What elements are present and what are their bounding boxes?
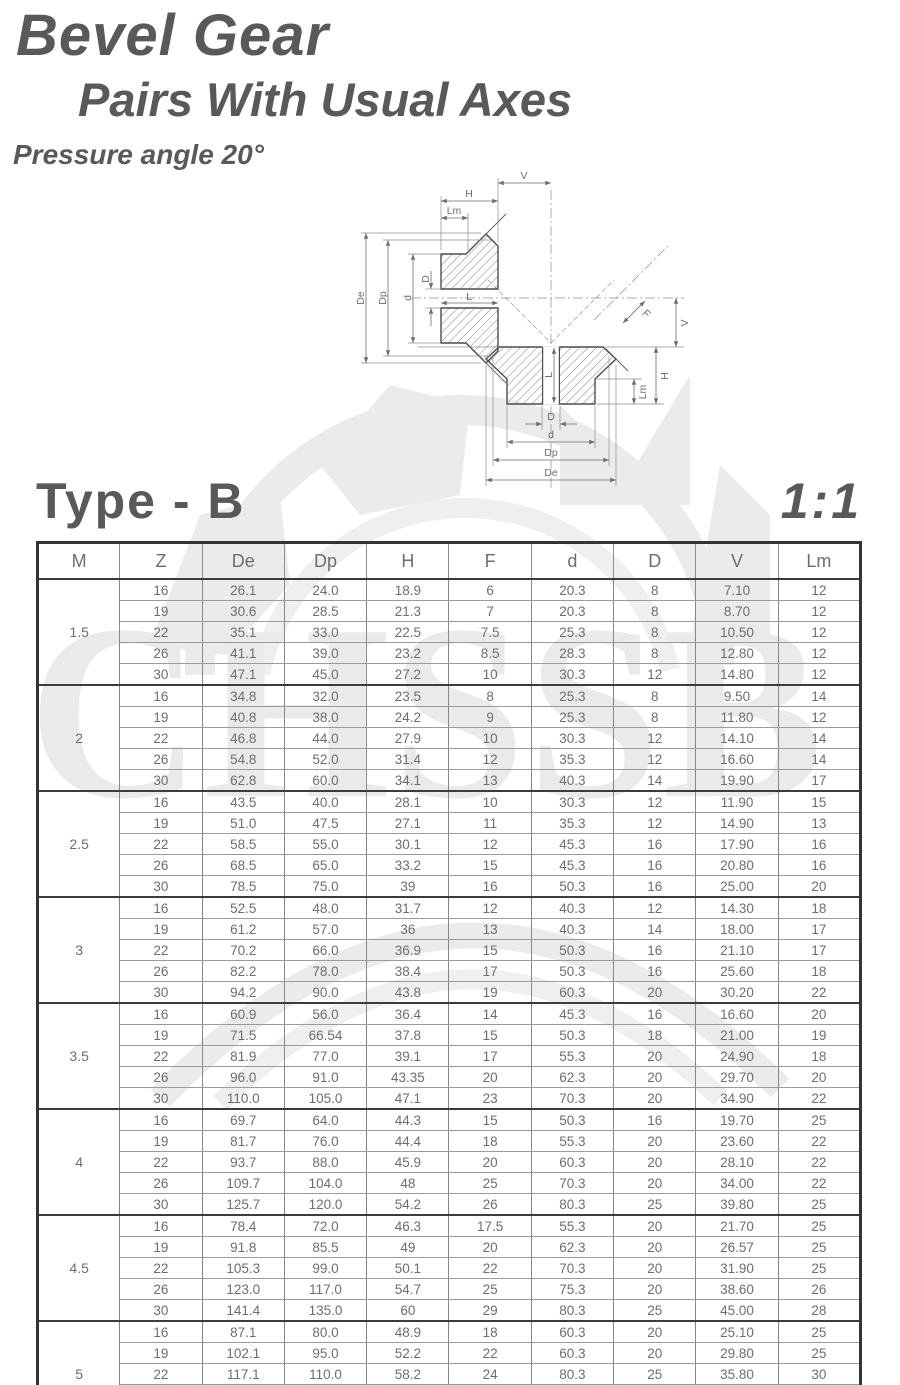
value-cell: 29 [449,1300,531,1322]
value-cell: 25 [449,1279,531,1300]
value-cell: 16 [120,579,202,601]
value-cell: 12 [614,728,696,749]
value-cell: 30.3 [531,791,613,813]
value-cell: 19.90 [696,770,778,792]
dim-label-v: V [520,170,527,182]
table-row: 1991.885.5492062.32026.5725 [38,1237,861,1258]
value-cell: 7.10 [696,579,778,601]
value-cell: 43.35 [367,1067,449,1088]
table-row: 21634.832.023.5825.389.5014 [38,685,861,707]
value-cell: 52.5 [202,897,284,919]
value-cell: 33.0 [284,622,366,643]
value-cell: 16 [778,855,860,876]
value-cell: 66.0 [284,940,366,961]
value-cell: 9 [449,707,531,728]
value-cell: 47.5 [284,813,366,834]
value-cell: 26 [120,855,202,876]
value-cell: 12 [778,643,860,664]
value-cell: 16 [449,876,531,898]
value-cell: 25.60 [696,961,778,982]
column-header-f: F [449,543,531,580]
value-cell: 26.57 [696,1237,778,1258]
value-cell: 26 [449,1194,531,1216]
value-cell: 27.2 [367,664,449,686]
dim-label-d-bore: D [420,275,432,283]
value-cell: 32.0 [284,685,366,707]
value-cell: 22 [778,982,860,1004]
value-cell: 16 [120,685,202,707]
value-cell: 61.2 [202,919,284,940]
value-cell: 30 [120,1300,202,1322]
value-cell: 25 [778,1109,860,1131]
value-cell: 12 [778,579,860,601]
table-row: 26123.0117.054.72575.32038.6026 [38,1279,861,1300]
value-cell: 20 [614,1237,696,1258]
value-cell: 66.54 [284,1025,366,1046]
value-cell: 20.3 [531,601,613,622]
gear-sections [441,234,616,404]
value-cell: 82.2 [202,961,284,982]
value-cell: 34.1 [367,770,449,792]
value-cell: 12 [449,897,531,919]
value-cell: 33.2 [367,855,449,876]
value-cell: 90.0 [284,982,366,1004]
dim-label-l-right: L [543,372,555,378]
table-row: 30110.0105.047.12370.32034.9022 [38,1088,861,1110]
value-cell: 8 [449,685,531,707]
value-cell: 20 [778,1067,860,1088]
value-cell: 16 [614,1109,696,1131]
table-row: 2682.278.038.41750.31625.6018 [38,961,861,982]
value-cell: 25.3 [531,707,613,728]
value-cell: 14.90 [696,813,778,834]
value-cell: 26 [120,1173,202,1194]
header-row: MZDeDpHFdDVLm [38,543,861,580]
value-cell: 43.5 [202,791,284,813]
value-cell: 30.20 [696,982,778,1004]
value-cell: 39 [367,876,449,898]
value-cell: 20.80 [696,855,778,876]
value-cell: 70.2 [202,940,284,961]
table-row: 3078.575.0391650.31625.0020 [38,876,861,898]
value-cell: 20 [614,1046,696,1067]
value-cell: 62.8 [202,770,284,792]
value-cell: 29.80 [696,1343,778,1364]
value-cell: 30.3 [531,664,613,686]
table-row: 4.51678.472.046.317.555.32021.7025 [38,1215,861,1237]
value-cell: 55.3 [531,1046,613,1067]
value-cell: 120.0 [284,1194,366,1216]
column-header-h: H [367,543,449,580]
value-cell: 36.4 [367,1003,449,1025]
value-cell: 102.1 [202,1343,284,1364]
value-cell: 12 [778,622,860,643]
value-cell: 19.70 [696,1109,778,1131]
pressure-angle-note: Pressure angle 20° [13,139,264,171]
value-cell: 105.3 [202,1258,284,1279]
value-cell: 62.3 [531,1067,613,1088]
value-cell: 48 [367,1173,449,1194]
value-cell: 26 [120,1279,202,1300]
column-header-m: M [38,543,120,580]
table-header: MZDeDpHFdDVLm [38,543,861,580]
value-cell: 14.10 [696,728,778,749]
value-cell: 16 [614,834,696,855]
value-cell: 22.5 [367,622,449,643]
table-row: 26109.7104.0482570.32034.0022 [38,1173,861,1194]
value-cell: 26 [120,749,202,770]
value-cell: 34.8 [202,685,284,707]
value-cell: 14 [614,770,696,792]
value-cell: 25 [778,1343,860,1364]
value-cell: 16 [120,897,202,919]
dim-label-l: L [466,291,472,303]
table-row: 51687.180.048.91860.32025.1025 [38,1321,861,1343]
dimension-labels: Lm H V De Dp d D L V H Lm F L D d Dp De [355,170,691,479]
value-cell: 117.1 [202,1364,284,1385]
value-cell: 60.3 [531,982,613,1004]
value-cell: 16.60 [696,1003,778,1025]
value-cell: 8.5 [449,643,531,664]
table-row: 1981.776.044.41855.32023.6022 [38,1131,861,1152]
table-row: 2668.565.033.21545.31620.8016 [38,855,861,876]
value-cell: 58.5 [202,834,284,855]
value-cell: 50.3 [531,1025,613,1046]
value-cell: 12 [778,601,860,622]
table-row: 2696.091.043.352062.32029.7020 [38,1067,861,1088]
value-cell: 44.4 [367,1131,449,1152]
value-cell: 25 [449,1173,531,1194]
value-cell: 70.3 [531,1258,613,1279]
value-cell: 14 [778,728,860,749]
value-cell: 31.4 [367,749,449,770]
value-cell: 44.0 [284,728,366,749]
table-row: 41669.764.044.31550.31619.7025 [38,1109,861,1131]
value-cell: 40.3 [531,919,613,940]
value-cell: 18.00 [696,919,778,940]
table-row: 2281.977.039.11755.32024.9018 [38,1046,861,1067]
value-cell: 22 [778,1173,860,1194]
value-cell: 47.1 [367,1088,449,1110]
table-row: 22105.399.050.12270.32031.9025 [38,1258,861,1279]
value-cell: 135.0 [284,1300,366,1322]
value-cell: 30 [120,664,202,686]
value-cell: 88.0 [284,1152,366,1173]
value-cell: 12 [614,664,696,686]
value-cell: 10.50 [696,622,778,643]
table-row: 1930.628.521.3720.388.7012 [38,601,861,622]
value-cell: 26 [120,1067,202,1088]
value-cell: 22 [120,1364,202,1385]
value-cell: 18 [614,1025,696,1046]
value-cell: 117.0 [284,1279,366,1300]
value-cell: 75.3 [531,1279,613,1300]
dim-label-dp-bottom: Dp [544,447,558,459]
table-row: 30125.7120.054.22680.32539.8025 [38,1194,861,1216]
value-cell: 19 [449,982,531,1004]
column-header-dp: Dp [284,543,366,580]
value-cell: 18.9 [367,579,449,601]
value-cell: 76.0 [284,1131,366,1152]
value-cell: 55.0 [284,834,366,855]
module-cell: 5 [38,1321,120,1385]
value-cell: 19 [778,1025,860,1046]
value-cell: 40.8 [202,707,284,728]
value-cell: 16 [614,1003,696,1025]
value-cell: 22 [120,1046,202,1067]
value-cell: 24 [449,1364,531,1385]
value-cell: 30 [120,1194,202,1216]
value-cell: 78.4 [202,1215,284,1237]
value-cell: 85.5 [284,1237,366,1258]
dim-label-de: De [355,291,367,305]
value-cell: 45.3 [531,834,613,855]
value-cell: 16 [120,1321,202,1343]
value-cell: 30 [120,876,202,898]
value-cell: 22 [120,834,202,855]
table-row: 1.51626.124.018.9620.387.1012 [38,579,861,601]
value-cell: 39.1 [367,1046,449,1067]
value-cell: 22 [778,1152,860,1173]
value-cell: 8 [614,643,696,664]
value-cell: 78.0 [284,961,366,982]
value-cell: 24.0 [284,579,366,601]
table-row: 2270.266.036.91550.31621.1017 [38,940,861,961]
value-cell: 31.90 [696,1258,778,1279]
column-header-lm: Lm [778,543,860,580]
dim-label-d-bore-bottom: D [547,411,555,423]
value-cell: 22 [120,1258,202,1279]
value-cell: 141.4 [202,1300,284,1322]
value-cell: 20 [778,1003,860,1025]
spec-table: MZDeDpHFdDVLm 1.51626.124.018.9620.387.1… [36,541,862,1385]
value-cell: 48.9 [367,1321,449,1343]
value-cell: 20 [614,1088,696,1110]
value-cell: 20 [614,1343,696,1364]
value-cell: 15 [449,1109,531,1131]
column-header-z: Z [120,543,202,580]
value-cell: 12 [614,813,696,834]
value-cell: 34.90 [696,1088,778,1110]
table-row: 3047.145.027.21030.31214.8012 [38,664,861,686]
dim-label-lm-right: Lm [637,384,649,399]
value-cell: 12 [614,897,696,919]
value-cell: 93.7 [202,1152,284,1173]
value-cell: 60 [367,1300,449,1322]
table-row: 2654.852.031.41235.31216.6014 [38,749,861,770]
value-cell: 16 [778,834,860,855]
value-cell: 30.6 [202,601,284,622]
dimension-lines [366,183,676,480]
value-cell: 110.0 [284,1364,366,1385]
value-cell: 91.0 [284,1067,366,1088]
value-cell: 49 [367,1237,449,1258]
value-cell: 15 [449,1025,531,1046]
value-cell: 80.0 [284,1321,366,1343]
table-row: 2293.788.045.92060.32028.1022 [38,1152,861,1173]
value-cell: 44.3 [367,1109,449,1131]
value-cell: 69.7 [202,1109,284,1131]
value-cell: 8 [614,622,696,643]
value-cell: 60.9 [202,1003,284,1025]
value-cell: 14.80 [696,664,778,686]
value-cell: 20 [449,1067,531,1088]
table-row: 3.51660.956.036.41445.31616.6020 [38,1003,861,1025]
value-cell: 54.8 [202,749,284,770]
value-cell: 25 [778,1258,860,1279]
value-cell: 47.1 [202,664,284,686]
value-cell: 60.3 [531,1321,613,1343]
value-cell: 25 [778,1194,860,1216]
value-cell: 8 [614,579,696,601]
value-cell: 8 [614,707,696,728]
value-cell: 35.3 [531,749,613,770]
value-cell: 81.7 [202,1131,284,1152]
value-cell: 7.5 [449,622,531,643]
value-cell: 17 [449,961,531,982]
value-cell: 24.90 [696,1046,778,1067]
value-cell: 50.3 [531,876,613,898]
value-cell: 55.3 [531,1131,613,1152]
value-cell: 27.9 [367,728,449,749]
value-cell: 65.0 [284,855,366,876]
value-cell: 15 [449,940,531,961]
value-cell: 52.2 [367,1343,449,1364]
value-cell: 22 [778,1131,860,1152]
value-cell: 87.1 [202,1321,284,1343]
value-cell: 8 [614,601,696,622]
table-row: 19102.195.052.22260.32029.8025 [38,1343,861,1364]
value-cell: 96.0 [202,1067,284,1088]
value-cell: 25 [778,1237,860,1258]
table-body: 1.51626.124.018.9620.387.10121930.628.52… [38,579,861,1385]
value-cell: 91.8 [202,1237,284,1258]
value-cell: 99.0 [284,1258,366,1279]
value-cell: 60.3 [531,1343,613,1364]
value-cell: 56.0 [284,1003,366,1025]
value-cell: 35.80 [696,1364,778,1385]
value-cell: 68.5 [202,855,284,876]
bevel-gear-diagram: Lm H V De Dp d D L V H Lm F L D d Dp De [328,166,752,513]
value-cell: 20 [614,1321,696,1343]
value-cell: 17 [778,940,860,961]
module-cell: 1.5 [38,579,120,685]
value-cell: 125.7 [202,1194,284,1216]
table-row: 30141.4135.0602980.32545.0028 [38,1300,861,1322]
catalog-page: CHSSB Bevel Gear Pairs With Usual Axes P… [0,0,900,1385]
value-cell: 19 [120,919,202,940]
value-cell: 18 [449,1321,531,1343]
value-cell: 95.0 [284,1343,366,1364]
value-cell: 21.10 [696,940,778,961]
value-cell: 17.5 [449,1215,531,1237]
value-cell: 10 [449,728,531,749]
value-cell: 27.1 [367,813,449,834]
value-cell: 22 [449,1258,531,1279]
value-cell: 19 [120,1131,202,1152]
value-cell: 15 [449,855,531,876]
value-cell: 54.7 [367,1279,449,1300]
value-cell: 72.0 [284,1215,366,1237]
value-cell: 12 [778,707,860,728]
value-cell: 20 [449,1237,531,1258]
value-cell: 11 [449,813,531,834]
value-cell: 123.0 [202,1279,284,1300]
module-cell: 4 [38,1109,120,1215]
module-cell: 3 [38,897,120,1003]
value-cell: 25.10 [696,1321,778,1343]
value-cell: 6 [449,579,531,601]
dim-label-v-right: V [679,319,691,326]
value-cell: 20 [449,1152,531,1173]
ratio-label: 1:1 [781,472,862,530]
value-cell: 29.70 [696,1067,778,1088]
value-cell: 25.00 [696,876,778,898]
value-cell: 30 [120,982,202,1004]
table-row: 2.51643.540.028.11030.31211.9015 [38,791,861,813]
value-cell: 45.9 [367,1152,449,1173]
value-cell: 16 [614,855,696,876]
value-cell: 12 [449,834,531,855]
value-cell: 40.3 [531,770,613,792]
value-cell: 19 [120,601,202,622]
value-cell: 70.3 [531,1173,613,1194]
value-cell: 40.3 [531,897,613,919]
dim-label-f: F [640,307,653,320]
value-cell: 52.0 [284,749,366,770]
value-cell: 16 [120,1215,202,1237]
value-cell: 54.2 [367,1194,449,1216]
value-cell: 41.1 [202,643,284,664]
value-cell: 36.9 [367,940,449,961]
value-cell: 20 [614,1258,696,1279]
page-subtitle: Pairs With Usual Axes [78,72,572,127]
value-cell: 25 [778,1321,860,1343]
value-cell: 40.0 [284,791,366,813]
value-cell: 11.90 [696,791,778,813]
value-cell: 50.3 [531,961,613,982]
value-cell: 58.2 [367,1364,449,1385]
type-label: Type - B [36,472,246,530]
table-row: 2235.133.022.57.525.3810.5012 [38,622,861,643]
value-cell: 16 [120,1003,202,1025]
value-cell: 25.3 [531,685,613,707]
value-cell: 80.3 [531,1364,613,1385]
value-cell: 46.3 [367,1215,449,1237]
value-cell: 15 [778,791,860,813]
value-cell: 26.1 [202,579,284,601]
value-cell: 77.0 [284,1046,366,1067]
value-cell: 109.7 [202,1173,284,1194]
value-cell: 39.80 [696,1194,778,1216]
dim-label-d-hub: d [402,295,414,301]
value-cell: 7 [449,601,531,622]
value-cell: 80.3 [531,1194,613,1216]
dim-label-h-right: H [659,372,671,380]
value-cell: 12 [614,749,696,770]
value-cell: 14 [778,749,860,770]
column-header-de: De [202,543,284,580]
value-cell: 50.1 [367,1258,449,1279]
value-cell: 17 [778,770,860,792]
value-cell: 60.3 [531,1152,613,1173]
value-cell: 36 [367,919,449,940]
value-cell: 18 [778,961,860,982]
value-cell: 23.2 [367,643,449,664]
value-cell: 28.5 [284,601,366,622]
value-cell: 50.3 [531,940,613,961]
value-cell: 26 [120,643,202,664]
